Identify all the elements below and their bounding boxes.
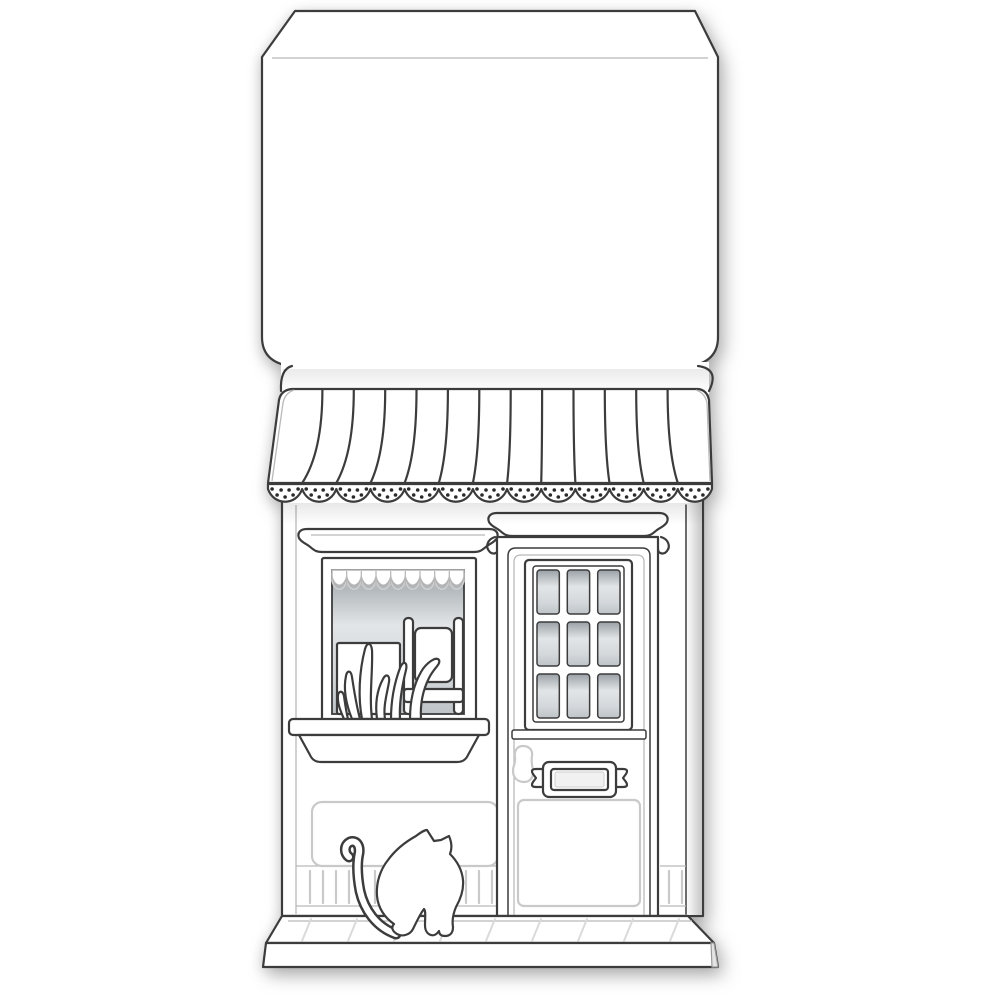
eyelet-dot <box>697 488 701 492</box>
eyelet-dot <box>458 488 462 492</box>
eyelet-dot <box>344 493 348 497</box>
eyelet-dot <box>484 488 488 492</box>
eyelet-dot <box>663 488 667 492</box>
eyelet-dot <box>441 487 445 491</box>
valance-scallops <box>332 570 464 585</box>
eyelet-dot <box>549 493 553 497</box>
eyelet-dot <box>633 493 637 497</box>
eyelet-dot <box>617 493 621 497</box>
eyelet-dot <box>587 488 591 492</box>
eyelet-dot <box>604 487 608 491</box>
eyelet-dot <box>535 487 539 491</box>
flower-box <box>289 719 489 762</box>
flap-cast-shadow <box>283 369 709 393</box>
eyelet-dot <box>373 487 377 491</box>
eyelet-dot <box>428 493 432 497</box>
eyelet-dot <box>304 487 308 491</box>
door-pane <box>598 622 620 666</box>
eyelet-dot <box>420 495 424 499</box>
eyelet-dot <box>706 487 710 491</box>
die-cut-card-scene <box>0 0 1000 1000</box>
door-handle <box>513 746 533 782</box>
eyelet-dot <box>450 488 454 492</box>
eyelet-dot <box>591 495 595 499</box>
eyelet-dot <box>283 495 287 499</box>
eyelet-dot <box>365 487 369 491</box>
awning-canopy <box>268 389 712 483</box>
eyelet-dot <box>360 493 364 497</box>
eyelet-dot <box>291 493 295 497</box>
eyelet-dot <box>352 495 356 499</box>
eyelet-dot <box>501 487 505 491</box>
eyelet-dot <box>275 493 279 497</box>
porch-face <box>263 943 718 967</box>
eyelet-dot <box>680 487 684 491</box>
flower-box-body <box>299 735 479 762</box>
eyelet-dot <box>480 493 484 497</box>
flower-box-rim <box>289 719 489 735</box>
eyelet-dot <box>330 487 334 491</box>
eyelet-dot <box>386 495 390 499</box>
eyelet-dot <box>651 493 655 497</box>
eyelet-dot <box>565 493 569 497</box>
eyelet-dot <box>321 488 325 492</box>
eyelet-dot <box>287 488 291 492</box>
eyelet-dot <box>667 493 671 497</box>
eyelet-dot <box>689 488 693 492</box>
eyelet-dot <box>416 488 420 492</box>
door-pane <box>537 570 559 614</box>
awning <box>268 389 712 502</box>
eyelet-dot <box>514 493 518 497</box>
eyelet-dot <box>492 488 496 492</box>
eyelet-dot <box>270 487 274 491</box>
eyelet-dot <box>557 495 561 499</box>
eyelet-dot <box>348 488 352 492</box>
eyelet-dot <box>578 487 582 491</box>
eyelet-dot <box>317 495 321 499</box>
door-pane <box>567 570 589 614</box>
eyelet-dot <box>518 488 522 492</box>
door-window-sill <box>512 730 646 739</box>
eyelet-dot <box>701 493 705 497</box>
eyelet-dot <box>659 495 663 499</box>
door-pane <box>537 674 559 718</box>
eyelet-dot <box>553 488 557 492</box>
eyelet-dot <box>655 488 659 492</box>
awning-cast-shadow <box>283 503 703 525</box>
eyelet-dot <box>595 488 599 492</box>
eyelet-dot <box>672 487 676 491</box>
eyelet-dot <box>526 488 530 492</box>
eyelet-dot <box>685 493 689 497</box>
door-window-panes <box>537 570 620 718</box>
eyelet-dot <box>446 493 450 497</box>
door-pane <box>598 674 620 718</box>
door-bottom-panel <box>518 800 640 906</box>
eyelet-dot <box>378 493 382 497</box>
eyelet-dot <box>390 488 394 492</box>
eyelet-dot <box>488 495 492 499</box>
plaque-inner <box>555 772 604 787</box>
eyelet-dot <box>544 487 548 491</box>
door-pane <box>598 570 620 614</box>
eyelet-dot <box>629 488 633 492</box>
eyelet-dot <box>509 487 513 491</box>
eyelet-dot <box>625 495 629 499</box>
eyelet-dot <box>356 488 360 492</box>
eyelet-dot <box>382 488 386 492</box>
eyelet-dot <box>646 487 650 491</box>
eyelet-dot <box>530 493 534 497</box>
eyelet-dot <box>599 493 603 497</box>
door-pane <box>567 674 589 718</box>
eyelet-dot <box>570 487 574 491</box>
eyelet-dot <box>424 488 428 492</box>
awning-stripe-line <box>541 390 542 483</box>
window-cornice <box>298 529 497 552</box>
eyelet-dot <box>612 487 616 491</box>
eyelet-dot <box>394 493 398 497</box>
eyelet-dot <box>309 493 313 497</box>
letter-plaque <box>532 762 627 797</box>
door-pane <box>537 622 559 666</box>
eyelet-dot <box>583 493 587 497</box>
eyelet-dot <box>621 488 625 492</box>
porch <box>263 916 718 967</box>
eyelet-dot <box>693 495 697 499</box>
envelope-flap <box>262 11 718 394</box>
eyelet-dot <box>475 487 479 491</box>
eyelet-dot <box>496 493 500 497</box>
shop-door <box>487 513 669 916</box>
eyelet-dot <box>313 488 317 492</box>
wall-right-return <box>686 486 702 915</box>
eyelet-dot <box>561 488 565 492</box>
eyelet-dot <box>399 487 403 491</box>
eyelet-dot <box>407 487 411 491</box>
door-pane <box>567 622 589 666</box>
eyelet-dot <box>296 487 300 491</box>
eyelet-dot <box>412 493 416 497</box>
eyelet-dot <box>325 493 329 497</box>
eyelet-dot <box>433 487 437 491</box>
eyelet-dot <box>522 495 526 499</box>
eyelet-dot <box>454 495 458 499</box>
eyelet-dot <box>638 487 642 491</box>
eyelet-dot <box>279 488 283 492</box>
storefront-illustration <box>0 0 1000 1000</box>
eyelet-dot <box>467 487 471 491</box>
flap-shape <box>262 11 718 366</box>
eyelet-dot <box>339 487 343 491</box>
eyelet-dot <box>462 493 466 497</box>
